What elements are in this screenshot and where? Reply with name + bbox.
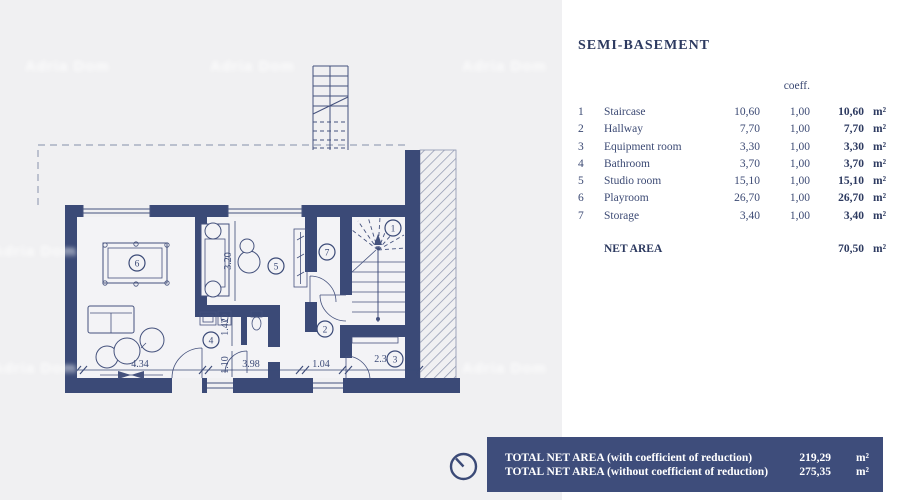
window-top-left — [83, 205, 150, 217]
area-table: coeff. 1 Staircase 10,60 1,00 10,60 m² 2… — [576, 80, 890, 255]
room-total: 3,30 — [810, 141, 864, 153]
room-total: 3,70 — [810, 158, 864, 170]
room-label-4: 4 — [203, 332, 219, 348]
table-row: 5 Studio room 15,10 1,00 15,10 m² — [576, 175, 890, 192]
table-row: 1 Staircase 10,60 1,00 10,60 m² — [576, 106, 890, 123]
page-title: SEMI-BASEMENT — [578, 38, 710, 54]
room-index: 3 — [576, 141, 592, 153]
net-area-value: 70,50 — [810, 243, 864, 255]
table-header-row: coeff. — [576, 80, 890, 106]
room-unit: m² — [864, 158, 890, 170]
room-name: Storage — [592, 210, 702, 222]
table-row: 4 Bathroom 3,70 1,00 3,70 m² — [576, 158, 890, 175]
window-bottom-right — [313, 378, 343, 393]
net-area-row: NET AREA 70,50 m² — [576, 243, 890, 255]
table-row: 2 Hallway 7,70 1,00 7,70 m² — [576, 123, 890, 140]
round-chair — [140, 328, 164, 352]
room-area: 10,60 — [702, 106, 760, 118]
room-coeff: 1,00 — [760, 192, 810, 204]
external-staircase — [313, 66, 348, 150]
room-index: 5 — [576, 175, 592, 187]
banner-line2-unit: m² — [831, 466, 869, 478]
svg-text:4: 4 — [209, 337, 214, 347]
room-coeff: 1,00 — [760, 106, 810, 118]
room-unit: m² — [864, 141, 890, 153]
window-bottom-left — [207, 378, 233, 393]
terrain-hatch — [420, 150, 456, 380]
room-index: 6 — [576, 192, 592, 204]
svg-text:2: 2 — [323, 326, 328, 336]
room-unit: m² — [864, 123, 890, 135]
room-unit: m² — [864, 210, 890, 222]
banner-line2-value: 275,35 — [779, 466, 831, 478]
room-index: 7 — [576, 210, 592, 222]
room-total: 26,70 — [810, 192, 864, 204]
area-summary-panel: SEMI-BASEMENT coeff. 1 Staircase 10,60 1… — [562, 0, 907, 500]
table-row: 7 Storage 3,40 1,00 3,40 m² — [576, 210, 890, 227]
room-name: Hallway — [592, 123, 702, 135]
room-label-6: 6 — [129, 255, 145, 271]
svg-text:7: 7 — [325, 249, 330, 259]
window-top-middle — [228, 205, 302, 217]
room-index: 4 — [576, 158, 592, 170]
room-total: 7,70 — [810, 123, 864, 135]
room-name: Bathroom — [592, 158, 702, 170]
room-coeff: 1,00 — [760, 158, 810, 170]
room-area: 7,70 — [702, 123, 760, 135]
room-coeff: 1,00 — [760, 123, 810, 135]
dim-label: 3.98 — [242, 359, 260, 370]
room-name: Playroom — [592, 192, 702, 204]
banner-line1-label: TOTAL NET AREA (with coefficient of redu… — [505, 452, 779, 464]
clock-icon — [448, 451, 479, 482]
room-label-2: 2 — [317, 321, 333, 337]
room-name: Staircase — [592, 106, 702, 118]
dim-label: 1.04 — [312, 359, 330, 370]
room-area: 3,70 — [702, 158, 760, 170]
banner-line-2: TOTAL NET AREA (without coefficient of r… — [505, 466, 869, 478]
table-row: 3 Equipment room 3,30 1,00 3,30 m² — [576, 141, 890, 158]
room-area: 15,10 — [702, 175, 760, 187]
banner-line1-unit: m² — [831, 452, 869, 464]
net-area-label: NET AREA — [592, 243, 702, 255]
room-unit: m² — [864, 192, 890, 204]
room-label-3: 3 — [387, 351, 403, 367]
sofa-playroom — [88, 306, 134, 333]
room-unit: m² — [864, 106, 890, 118]
room-coeff: 1,00 — [760, 175, 810, 187]
room-total: 15,10 — [810, 175, 864, 187]
dim-label: 3.20 — [223, 252, 234, 270]
room-name: Equipment room — [592, 141, 702, 153]
room-index: 2 — [576, 123, 592, 135]
net-area-unit: m² — [864, 243, 890, 255]
room-index: 1 — [576, 106, 592, 118]
svg-text:1: 1 — [391, 225, 396, 235]
room-coeff: 1,00 — [760, 210, 810, 222]
banner-line2-label: TOTAL NET AREA (without coefficient of r… — [505, 466, 779, 478]
table-row: 6 Playroom 26,70 1,00 26,70 m² — [576, 192, 890, 209]
room-area: 26,70 — [702, 192, 760, 204]
room-name: Studio room — [592, 175, 702, 187]
dim-label: 1.42 — [220, 318, 231, 336]
floor-plan: 4.34 3.98 1.04 2.39 3.20 1.42 1.10 1 2 3… — [0, 0, 562, 500]
room-label-7: 7 — [319, 244, 335, 260]
room-area: 3,30 — [702, 141, 760, 153]
banner-line-1: TOTAL NET AREA (with coefficient of redu… — [505, 452, 869, 464]
room-area: 3,40 — [702, 210, 760, 222]
table-rows: 1 Staircase 10,60 1,00 10,60 m² 2 Hallwa… — [576, 106, 890, 227]
svg-text:3: 3 — [393, 356, 398, 366]
dim-label: 1.10 — [220, 356, 231, 374]
coeff-column-header: coeff. — [760, 80, 810, 106]
room-label-5: 5 — [268, 258, 284, 274]
svg-text:5: 5 — [274, 263, 279, 273]
room-total: 3,40 — [810, 210, 864, 222]
dim-label: 4.34 — [131, 359, 149, 370]
room-total: 10,60 — [810, 106, 864, 118]
banner-line1-value: 219,29 — [779, 452, 831, 464]
room-label-1: 1 — [385, 220, 401, 236]
total-net-area-banner: TOTAL NET AREA (with coefficient of redu… — [487, 437, 883, 492]
room-unit: m² — [864, 175, 890, 187]
screenshot-canvas: 4.34 3.98 1.04 2.39 3.20 1.42 1.10 1 2 3… — [0, 0, 907, 500]
svg-text:6: 6 — [135, 260, 140, 270]
upper-floor-dashed-outline — [38, 145, 405, 205]
room-coeff: 1,00 — [760, 141, 810, 153]
